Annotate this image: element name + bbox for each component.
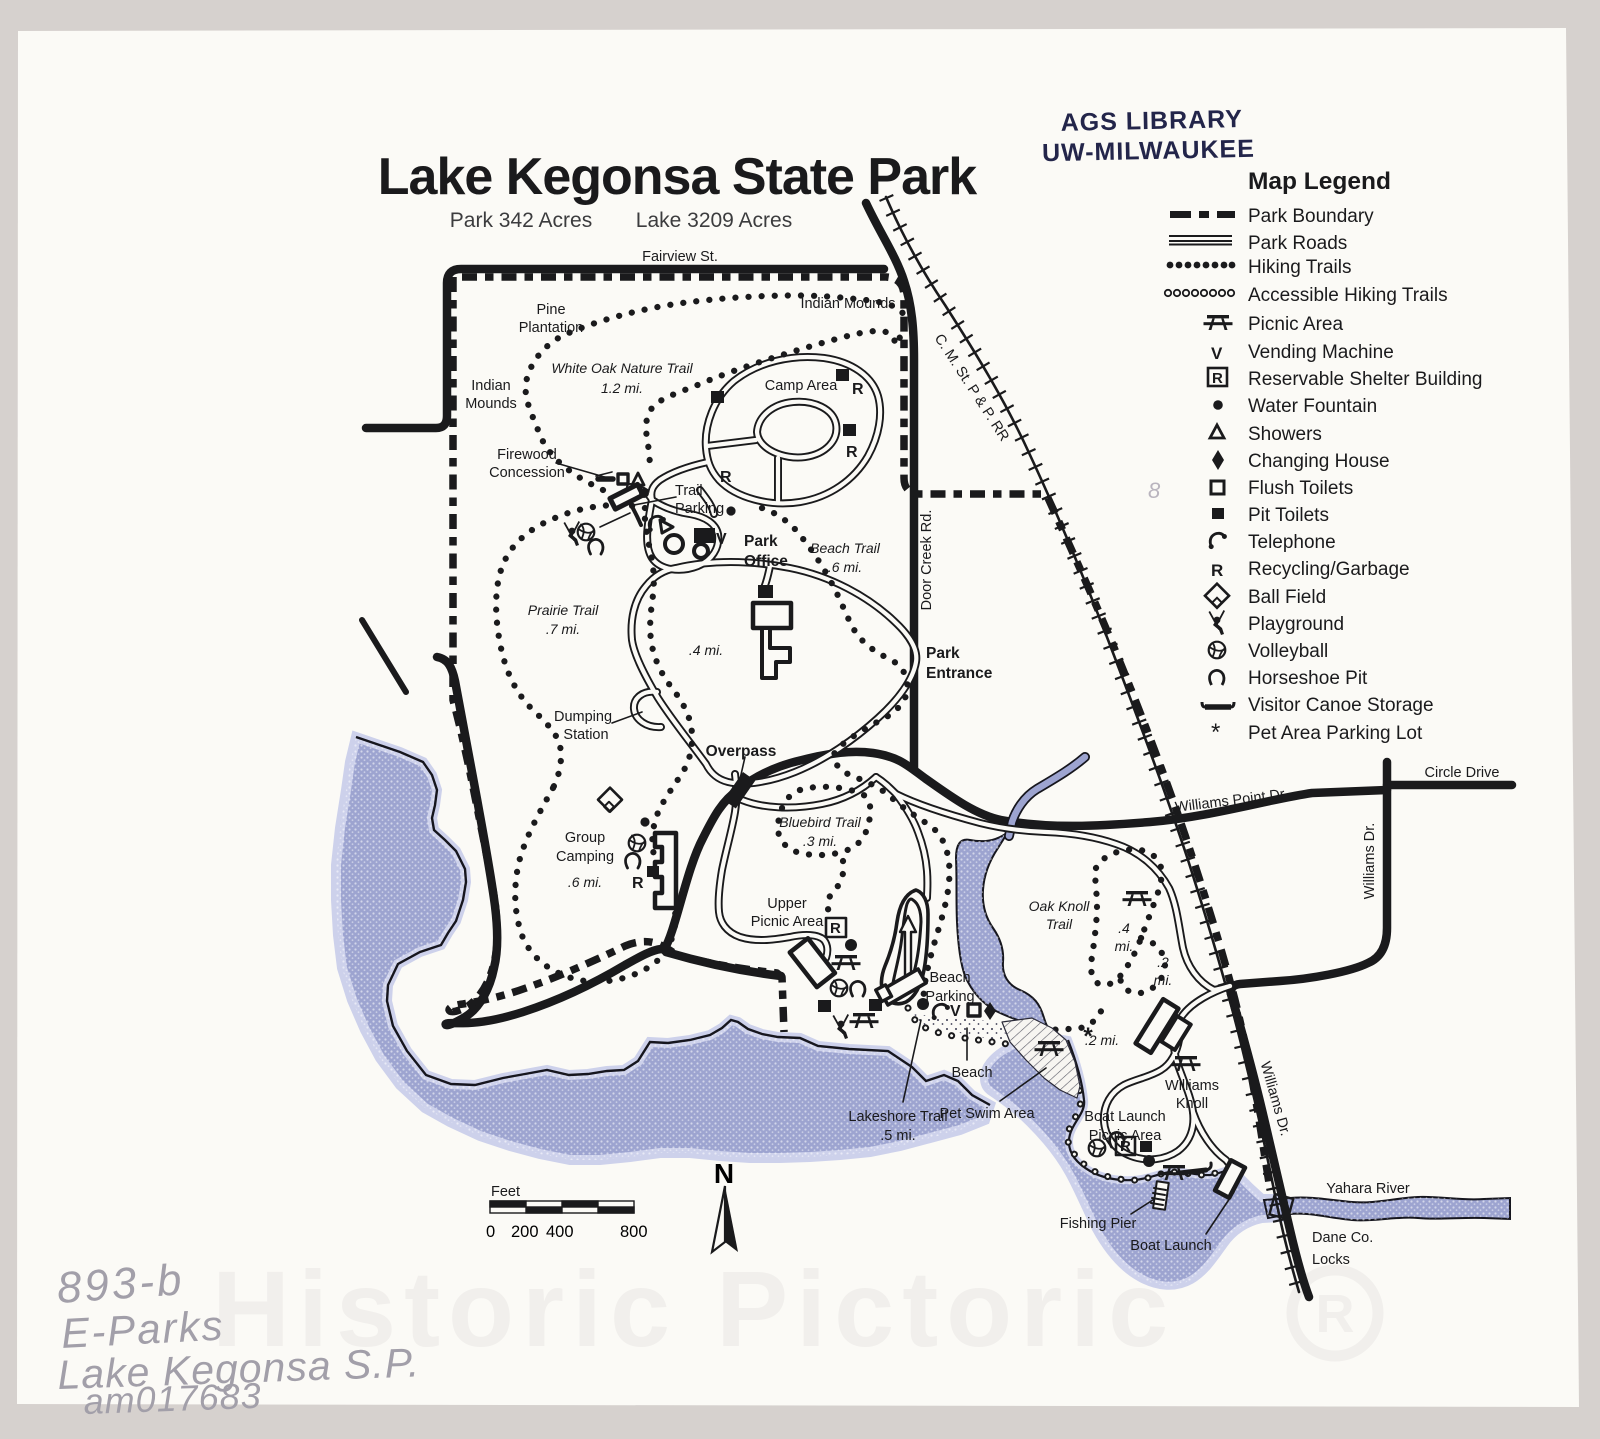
- svg-text:Lake 3209 Acres: Lake 3209 Acres: [636, 209, 792, 232]
- svg-text:R: R: [1212, 370, 1223, 387]
- svg-text:V: V: [1211, 344, 1223, 363]
- svg-text:Lake Kegonsa State Park: Lake Kegonsa State Park: [378, 148, 977, 206]
- svg-text:Williams Dr.: Williams Dr.: [1362, 823, 1378, 900]
- svg-text:400: 400: [546, 1223, 574, 1241]
- svg-text:mi.: mi.: [1154, 972, 1173, 988]
- svg-text:Ball Field: Ball Field: [1248, 587, 1326, 608]
- svg-text:Concession: Concession: [489, 465, 565, 481]
- svg-text:0: 0: [486, 1223, 495, 1241]
- svg-text:Volleyball: Volleyball: [1248, 641, 1328, 662]
- svg-text:Picnic Area: Picnic Area: [1089, 1128, 1162, 1144]
- svg-text:Park Boundary: Park Boundary: [1248, 206, 1374, 227]
- svg-text:Visitor Canoe Storage: Visitor Canoe Storage: [1248, 695, 1434, 716]
- svg-text:Feet: Feet: [491, 1184, 520, 1200]
- svg-text:mi.: mi.: [1115, 938, 1134, 954]
- svg-text:Parking: Parking: [925, 989, 974, 1005]
- svg-text:R: R: [852, 381, 864, 398]
- svg-text:Knoll: Knoll: [1176, 1096, 1208, 1112]
- svg-text:Horseshoe Pit: Horseshoe Pit: [1248, 668, 1368, 689]
- svg-text:White Oak Nature Trail: White Oak Nature Trail: [551, 360, 693, 376]
- svg-text:Hiking Trails: Hiking Trails: [1248, 257, 1351, 278]
- svg-text:.2 mi.: .2 mi.: [1085, 1032, 1119, 1048]
- svg-text:Parking: Parking: [675, 501, 724, 517]
- svg-text:.2: .2: [1157, 954, 1169, 970]
- svg-text:Showers: Showers: [1248, 424, 1322, 445]
- svg-text:.3 mi.: .3 mi.: [803, 833, 837, 849]
- svg-text:Camp Area: Camp Area: [765, 378, 838, 394]
- svg-text:Trail: Trail: [675, 483, 703, 499]
- svg-text:Picnic Area: Picnic Area: [751, 914, 824, 930]
- svg-text:Indian Mounds: Indian Mounds: [800, 296, 895, 312]
- svg-text:1.2 mi.: 1.2 mi.: [601, 380, 643, 396]
- svg-text:Park Roads: Park Roads: [1248, 233, 1347, 254]
- svg-text:Map Legend: Map Legend: [1248, 168, 1391, 195]
- svg-text:Mounds: Mounds: [465, 396, 517, 412]
- svg-text:Oak Knoll: Oak Knoll: [1029, 898, 1091, 914]
- svg-text:Circle Drive: Circle Drive: [1425, 765, 1500, 781]
- svg-text:Picnic Area: Picnic Area: [1248, 314, 1343, 335]
- svg-text:Pet Swim Area: Pet Swim Area: [939, 1106, 1035, 1122]
- svg-text:Fairview St.: Fairview St.: [642, 249, 718, 265]
- svg-text:Entrance: Entrance: [926, 665, 993, 682]
- svg-text:Indian: Indian: [471, 378, 511, 394]
- svg-text:V: V: [716, 531, 727, 548]
- svg-text:R: R: [1211, 561, 1223, 580]
- svg-text:Boat Launch: Boat Launch: [1084, 1109, 1165, 1125]
- svg-text:Yahara River: Yahara River: [1326, 1181, 1410, 1197]
- svg-text:Pit Toilets: Pit Toilets: [1248, 505, 1329, 526]
- svg-text:Playground: Playground: [1248, 614, 1344, 635]
- svg-text:Firewood: Firewood: [497, 447, 557, 463]
- svg-text:Changing House: Changing House: [1248, 451, 1390, 472]
- svg-text:Station: Station: [563, 727, 608, 743]
- svg-text:Prairie Trail: Prairie Trail: [528, 602, 599, 618]
- svg-text:Park: Park: [744, 533, 778, 550]
- svg-text:Recycling/Garbage: Recycling/Garbage: [1248, 559, 1410, 580]
- svg-text:.6 mi.: .6 mi.: [828, 559, 862, 575]
- svg-text:.4 mi.: .4 mi.: [689, 642, 723, 658]
- svg-text:Beach: Beach: [951, 1065, 992, 1081]
- svg-text:Fishing Pier: Fishing Pier: [1060, 1216, 1137, 1232]
- svg-text:Boat Launch: Boat Launch: [1130, 1238, 1211, 1254]
- svg-text:am017683: am017683: [83, 1375, 262, 1422]
- svg-text:Telephone: Telephone: [1248, 532, 1336, 553]
- svg-text:R: R: [846, 444, 858, 461]
- svg-text:Plantation: Plantation: [519, 320, 584, 336]
- svg-text:Overpass: Overpass: [706, 743, 777, 760]
- svg-text:Group: Group: [565, 830, 605, 846]
- svg-text:Water Fountain: Water Fountain: [1248, 396, 1377, 417]
- svg-text:Locks: Locks: [1312, 1252, 1350, 1268]
- svg-text:*: *: [1211, 719, 1220, 746]
- svg-text:Dumping: Dumping: [554, 709, 612, 725]
- svg-text:AGS LIBRARY: AGS LIBRARY: [1060, 105, 1243, 137]
- svg-text:Park 342 Acres: Park 342 Acres: [450, 209, 592, 232]
- svg-text:R: R: [1316, 1284, 1355, 1344]
- svg-text:Accessible Hiking Trails: Accessible Hiking Trails: [1248, 285, 1448, 306]
- svg-text:200: 200: [511, 1223, 539, 1241]
- svg-text:R: R: [720, 469, 732, 486]
- svg-text:V: V: [950, 1003, 961, 1020]
- svg-text:Flush Toilets: Flush Toilets: [1248, 478, 1353, 499]
- svg-text:.4: .4: [1118, 920, 1130, 936]
- svg-text:Park: Park: [926, 645, 960, 662]
- svg-text:Reservable Shelter Building: Reservable Shelter Building: [1248, 369, 1482, 390]
- svg-text:800: 800: [620, 1223, 648, 1241]
- svg-text:.7 mi.: .7 mi.: [546, 621, 580, 637]
- svg-text:Door Creek Rd.: Door Creek Rd.: [919, 510, 935, 611]
- svg-text:UW-MILWAUKEE: UW-MILWAUKEE: [1042, 135, 1255, 167]
- svg-text:Trail: Trail: [1046, 916, 1073, 932]
- svg-text:Pet Area Parking Lot: Pet Area Parking Lot: [1248, 723, 1423, 744]
- svg-text:.6 mi.: .6 mi.: [568, 874, 602, 890]
- svg-text:Upper: Upper: [767, 896, 807, 912]
- svg-text:Dane Co.: Dane Co.: [1312, 1230, 1373, 1246]
- svg-text:Camping: Camping: [556, 849, 614, 865]
- svg-text:Lakeshore Trail: Lakeshore Trail: [848, 1109, 947, 1125]
- svg-text:8: 8: [1148, 478, 1161, 503]
- svg-text:R: R: [830, 920, 841, 937]
- svg-text:R: R: [632, 875, 644, 892]
- svg-text:Bluebird Trail: Bluebird Trail: [779, 814, 861, 830]
- svg-text:Williams: Williams: [1165, 1078, 1219, 1094]
- svg-text:Beach: Beach: [929, 970, 970, 986]
- svg-text:N: N: [714, 1158, 734, 1189]
- svg-text:Vending Machine: Vending Machine: [1248, 342, 1394, 363]
- svg-text:.5 mi.: .5 mi.: [880, 1128, 915, 1144]
- svg-text:Pine: Pine: [536, 302, 565, 318]
- svg-text:Office: Office: [744, 553, 788, 570]
- svg-text:Beach Trail: Beach Trail: [810, 540, 881, 556]
